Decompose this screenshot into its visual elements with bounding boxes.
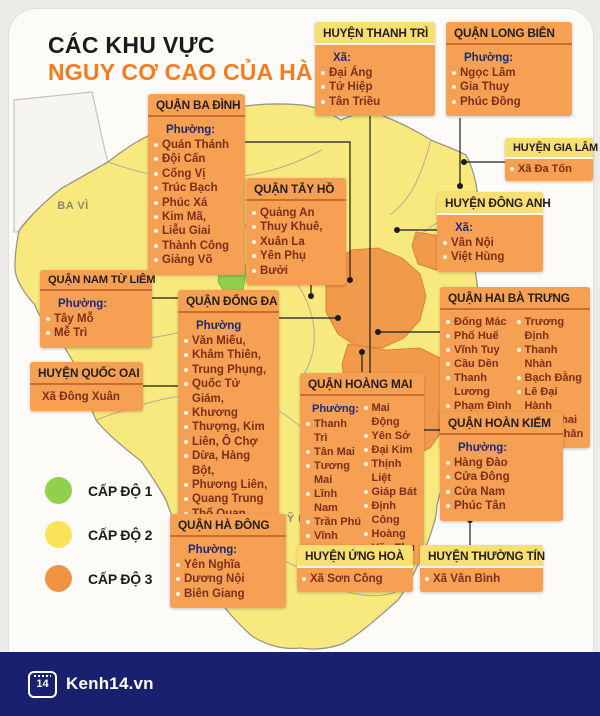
bullet-dot	[154, 172, 158, 176]
ward-name: Thịnh Liệt	[372, 457, 420, 485]
ward-list: Xã Đông Xuân	[36, 390, 138, 404]
ward-name: Trương Định	[525, 315, 586, 343]
bullet-dot	[425, 577, 429, 581]
bullet-dot	[517, 320, 521, 324]
bullet-dot	[446, 362, 450, 366]
ward-name: Cửa Nam	[454, 485, 505, 499]
ward-name: Định Công	[372, 499, 420, 527]
ward-type-label: Phường:	[154, 122, 240, 138]
ward-list: Đại ÁngTứ HiệpTân Triều	[321, 66, 430, 109]
ward-name: Dương Nội	[184, 572, 245, 586]
ward-name: Đại Áng	[329, 66, 372, 80]
ward-item: Mễ Trì	[46, 326, 147, 340]
ward-list: Văn Miếu,Khâm Thiên,Trung Phụng,Quốc Tử …	[184, 334, 274, 521]
bullet-dot	[443, 255, 447, 259]
ward-name: Thanh Lương	[454, 371, 515, 399]
ward-name: Quảng An	[260, 206, 315, 220]
level-1-dot	[45, 477, 72, 504]
ward-item: Cửa Đông	[446, 470, 558, 484]
ward-name: Phúc Xá	[162, 196, 207, 210]
bullet-dot	[321, 85, 325, 89]
ward-name: Phúc Tân	[454, 499, 506, 513]
bullet-dot	[154, 186, 158, 190]
bullet-dot	[446, 490, 450, 494]
ward-item: Thanh Trì	[306, 417, 362, 445]
district-box-title: QUẬN HÀ ĐÔNG	[170, 514, 286, 537]
ward-item: Phố Huế	[446, 329, 515, 343]
ward-name: Phố Huế	[454, 329, 499, 343]
ward-name: Giảng Võ	[162, 253, 212, 267]
ward-item: Phúc Xá	[154, 196, 240, 210]
ward-type-label: Phường:	[306, 401, 362, 417]
district-box-title: QUẬN NAM TỪ LIÊM	[40, 270, 152, 291]
district-box-quan-long-bien: QUẬN LONG BIÊN Phường: Ngọc LâmGia ThuyP…	[446, 22, 572, 116]
ward-name: Trúc Bạch	[162, 181, 218, 195]
ward-name: Khâm Thiên,	[192, 348, 261, 362]
bullet-dot	[510, 167, 514, 171]
ward-item: Dương Nội	[176, 572, 281, 586]
ward-item: Quán Thánh	[154, 138, 240, 152]
district-box-huyen-quoc-oai: HUYỆN QUỐC OAI Xã Đông Xuân	[30, 362, 143, 411]
ward-item: Thanh Lương	[446, 371, 515, 399]
ward-item: Bạch Đằng	[517, 371, 586, 385]
ward-item: Dừa, Hàng Bột,	[184, 449, 274, 478]
bullet-dot	[252, 269, 256, 273]
bullet-dot	[252, 254, 256, 258]
district-box-quan-tay-ho: QUẬN TÂY HỒ Quảng AnThuy Khuê,Xuân LaYên…	[246, 178, 346, 285]
bullet-dot	[154, 157, 158, 161]
ward-item: Thành Công	[154, 239, 240, 253]
bullet-dot	[184, 339, 188, 343]
bullet-dot	[364, 490, 368, 494]
ward-item: Cầu Dền	[446, 357, 515, 371]
ward-item: Yên Sở	[364, 429, 420, 443]
ward-name: Trần Phú	[314, 515, 361, 529]
ward-type-label: Phường	[184, 318, 274, 334]
ward-list: Tây MỗMễ Trì	[46, 312, 147, 341]
bullet-dot	[446, 376, 450, 380]
district-box-huyen-dong-anh: HUYỆN ĐÔNG ANH Xã: Vân NộiViệt Hùng	[437, 192, 543, 272]
infographic-stage: CÁC KHU VỰC NGUY CƠ CAO CỦA HÀ NỘI BA VÌ…	[0, 0, 600, 716]
bullet-dot	[452, 71, 456, 75]
district-box-title: QUẬN HAI BÀ TRƯNG	[440, 287, 590, 310]
district-box-huyen-gia-lam: HUYỆN GIA LÂM Xã Đa Tốn	[505, 138, 593, 181]
bullet-dot	[446, 320, 450, 324]
kenh14-logo-text: Kenh14.vn	[66, 674, 154, 694]
ward-item: Quang Trung	[184, 492, 274, 506]
ward-name: Yên Phụ	[260, 249, 306, 263]
ward-item: Phúc Tân	[446, 499, 558, 513]
bullet-dot	[176, 563, 180, 567]
bullet-dot	[46, 331, 50, 335]
bullet-dot	[517, 390, 521, 394]
ward-name: Đại Kim	[372, 443, 413, 457]
bullet-dot	[184, 353, 188, 357]
ward-list: Yên NghĩaDương NộiBiên Giang	[176, 558, 281, 601]
ward-item: Tân Triều	[321, 95, 430, 109]
ward-item: Trúc Bạch	[154, 181, 240, 195]
ward-item: Đống Mác	[446, 315, 515, 329]
bullet-dot	[184, 497, 188, 501]
bullet-dot	[252, 211, 256, 215]
title-line-2: NGUY CƠ CAO CỦA HÀ NỘI	[48, 59, 361, 86]
ward-item: Mai Động	[364, 401, 420, 429]
ward-item: Khâm Thiên,	[184, 348, 274, 362]
ward-name: Tây Mỗ	[54, 312, 94, 326]
ward-item: Lê Đại Hành	[517, 385, 586, 413]
ward-item: Lĩnh Nam	[306, 487, 362, 515]
ward-list: Xã Sơn Công	[302, 572, 409, 586]
district-box-quan-hoan-kiem: QUẬN HOÀN KIẾM Phường: Hàng ĐàoCửa ĐôngC…	[440, 412, 563, 521]
bullet-dot	[452, 100, 456, 104]
district-box-title: HUYỆN QUỐC OAI	[30, 362, 143, 385]
bullet-dot	[446, 504, 450, 508]
bullet-dot	[154, 215, 158, 219]
ward-item: Bưởi	[252, 264, 341, 278]
level-3-dot	[45, 565, 72, 592]
bullet-dot	[517, 348, 521, 352]
bullet-dot	[517, 376, 521, 380]
ward-name: Mai Động	[372, 401, 420, 429]
district-box-huyen-thuong-tin: HUYỆN THƯỜNG TÍN Xã Vân Bình	[420, 545, 543, 592]
district-box-huyen-thanh-tri: HUYỆN THANH TRÌ Xã: Đại ÁngTứ HiệpTân Tr…	[315, 22, 435, 116]
district-box-quan-ha-dong: QUẬN HÀ ĐÔNG Phường: Yên NghĩaDương NộiB…	[170, 514, 286, 608]
district-box-title: QUẬN TÂY HỒ	[246, 178, 346, 201]
ward-name: Ngọc Lâm	[460, 66, 516, 80]
ward-name: Cống Vị	[162, 167, 205, 181]
ward-item: Trung Phụng,	[184, 363, 274, 377]
ward-item: Khương	[184, 406, 274, 420]
ward-item: Việt Hùng	[443, 250, 538, 264]
ward-list: Vân NộiViệt Hùng	[443, 236, 538, 265]
ward-list: Ngọc LâmGia ThuyPhúc Đồng	[452, 66, 567, 109]
legend-item-level-3: CẤP ĐỘ 3	[45, 565, 152, 592]
ward-item: Định Công	[364, 499, 420, 527]
district-box-quan-ba-dinh: QUẬN BA ĐÌNH Phường: Quán ThánhĐội CấnCố…	[148, 94, 245, 275]
ward-item: Liễu Giai	[154, 224, 240, 238]
ward-name: Vân Nội	[451, 236, 494, 250]
page-title: CÁC KHU VỰC NGUY CƠ CAO CỦA HÀ NỘI	[48, 32, 361, 86]
ward-name: Thượng, Kim	[192, 420, 265, 434]
ward-item: Đại Kim	[364, 443, 420, 457]
kenh14-logo-icon: 14	[28, 671, 57, 698]
ward-name: Dừa, Hàng Bột,	[192, 449, 274, 478]
ward-name: Thanh Nhàn	[525, 343, 586, 371]
ward-name: Xã Vân Bình	[433, 572, 500, 586]
ward-type-label: Phường:	[176, 542, 281, 558]
district-box-huyen-ung-hoa: HUYỆN ỨNG HOÀ Xã Sơn Công	[297, 545, 413, 592]
ward-name: Lĩnh Nam	[314, 487, 362, 515]
bullet-dot	[306, 520, 310, 524]
bullet-dot	[306, 450, 310, 454]
ward-name: Bưởi	[260, 264, 288, 278]
ward-item: Hàng Đào	[446, 456, 558, 470]
bullet-dot	[184, 454, 188, 458]
map-label-ba-vi: BA VÌ	[56, 198, 90, 215]
title-line-1: CÁC KHU VỰC	[48, 32, 361, 59]
district-box-title: HUYỆN GIA LÂM	[505, 138, 593, 159]
district-box-title: QUẬN BA ĐÌNH	[148, 94, 245, 117]
ward-list: Quảng AnThuy Khuê,Xuân LaYên PhụBưởi	[252, 206, 341, 278]
bullet-dot	[184, 411, 188, 415]
ward-name: Quán Thánh	[162, 138, 229, 152]
ward-item: Vĩnh Tuy	[446, 343, 515, 357]
ward-name: Khương	[192, 406, 238, 420]
ward-item: Đại Áng	[321, 66, 430, 80]
ward-name: Phúc Đồng	[460, 95, 521, 109]
bullet-dot	[452, 85, 456, 89]
ward-name: Liễu Giai	[162, 224, 211, 238]
bullet-dot	[446, 348, 450, 352]
bullet-dot	[184, 483, 188, 487]
bullet-dot	[176, 592, 180, 596]
ward-item: Phương Liên,	[184, 478, 274, 492]
ward-list: Xã Vân Bình	[425, 572, 539, 586]
ward-name: Xuân La	[260, 235, 305, 249]
ward-name: Xã Sơn Công	[310, 572, 383, 586]
level-2-dot	[45, 521, 72, 548]
bullet-dot	[252, 225, 256, 229]
ward-name: Cầu Dền	[454, 357, 499, 371]
district-box-quan-nam-tu-liem: QUẬN NAM TỪ LIÊM Phường: Tây MỗMễ Trì	[40, 270, 152, 348]
bullet-dot	[306, 422, 310, 426]
district-box-quan-dong-da: QUẬN ĐỐNG ĐA Phường Văn Miếu,Khâm Thiên,…	[178, 290, 279, 528]
district-box-title: HUYỆN ĐÔNG ANH	[437, 192, 543, 215]
ward-name: Bạch Đằng	[525, 371, 582, 385]
district-box-title: HUYỆN THƯỜNG TÍN	[420, 545, 543, 568]
ward-name: Lê Đại Hành	[525, 385, 586, 413]
ward-item: Tân Mai	[306, 445, 362, 459]
ward-item: Thịnh Liệt	[364, 457, 420, 485]
bullet-dot	[446, 461, 450, 465]
bullet-dot	[154, 244, 158, 248]
ward-name: Gia Thuy	[460, 80, 509, 94]
legend-item-level-2: CẤP ĐỘ 2	[45, 521, 152, 548]
ward-name: Trung Phụng,	[192, 363, 266, 377]
bullet-dot	[154, 229, 158, 233]
risk-level-legend: CẤP ĐỘ 1 CẤP ĐỘ 2 CẤP ĐỘ 3	[45, 477, 152, 592]
ward-item: Xuân La	[252, 235, 341, 249]
ward-name: Thuy Khuê,	[260, 220, 323, 234]
bullet-dot	[184, 382, 188, 386]
ward-name: Biên Giang	[184, 587, 245, 601]
bullet-dot	[154, 201, 158, 205]
ward-item: Gia Thuy	[452, 80, 567, 94]
bullet-dot	[184, 368, 188, 372]
ward-item: Quốc Tử Giám,	[184, 377, 274, 406]
ward-item: Trần Phú	[306, 515, 362, 529]
bullet-dot	[364, 406, 368, 410]
ward-name: Xã Đông Xuân	[42, 390, 120, 404]
ward-item: Tương Mai	[306, 459, 362, 487]
ward-name: Xã Đa Tốn	[518, 162, 572, 176]
ward-item: Biên Giang	[176, 587, 281, 601]
legend-label: CẤP ĐỘ 2	[88, 527, 152, 543]
bullet-dot	[46, 317, 50, 321]
ward-type-label: Xã:	[321, 50, 430, 66]
bullet-dot	[364, 504, 368, 508]
ward-name: Vĩnh Tuy	[454, 343, 500, 357]
ward-type-label: Phường:	[452, 50, 567, 66]
ward-item: Cống Vị	[154, 167, 240, 181]
ward-item: Tây Mỗ	[46, 312, 147, 326]
ward-name: Yên Nghĩa	[184, 558, 240, 572]
district-box-quan-hoang-mai: QUẬN HOÀNG MAI Phường: Thanh TrìTân MaiT…	[300, 373, 424, 564]
ward-item: Xã Đông Xuân	[36, 390, 138, 404]
ward-item: Xã Sơn Công	[302, 572, 409, 586]
ward-name: Văn Miếu,	[192, 334, 246, 348]
ward-item: Quảng An	[252, 206, 341, 220]
ward-item: Vân Nội	[443, 236, 538, 250]
ward-item: Kim Mã,	[154, 210, 240, 224]
bullet-dot	[176, 577, 180, 581]
ward-name: Kim Mã,	[162, 210, 206, 224]
ward-list: Xã Đa Tốn	[510, 162, 589, 176]
ward-item: Yên Nghĩa	[176, 558, 281, 572]
ward-item: Đội Cấn	[154, 152, 240, 166]
ward-item: Phúc Đồng	[452, 95, 567, 109]
bullet-dot	[252, 240, 256, 244]
ward-list: Hàng ĐàoCửa ĐôngCửa NamPhúc Tân	[446, 456, 558, 514]
ward-type-label: Phường:	[46, 296, 147, 312]
district-box-title: QUẬN LONG BIÊN	[446, 22, 572, 45]
ward-name: Quang Trung	[192, 492, 264, 506]
ward-name: Tứ Hiệp	[329, 80, 372, 94]
ward-item: Văn Miếu,	[184, 334, 274, 348]
ward-name: Liên, Ô Chợ	[192, 435, 258, 449]
ward-item: Xã Đa Tốn	[510, 162, 589, 176]
ward-name: Hàng Đào	[454, 456, 508, 470]
bullet-dot	[321, 100, 325, 104]
ward-name: Thành Công	[162, 239, 229, 253]
ward-item: Giáp Bát	[364, 485, 420, 499]
ward-type-label: Xã:	[443, 220, 538, 236]
ward-item: Giảng Võ	[154, 253, 240, 267]
ward-list-left: Thanh TrìTân MaiTương MaiLĩnh NamTrần Ph…	[306, 417, 362, 557]
ward-name: Quốc Tử Giám,	[192, 377, 274, 406]
bullet-dot	[302, 577, 306, 581]
ward-name: Tân Mai	[314, 445, 355, 459]
bullet-dot	[364, 448, 368, 452]
bullet-dot	[364, 532, 368, 536]
ward-item: Thuy Khuê,	[252, 220, 341, 234]
ward-list-right: Mai ĐộngYên SởĐại KimThịnh LiệtGiáp BátĐ…	[364, 401, 420, 557]
bullet-dot	[154, 258, 158, 262]
bullet-dot	[443, 241, 447, 245]
ward-name: Yên Sở	[372, 429, 410, 443]
bullet-dot	[306, 464, 310, 468]
bullet-dot	[446, 404, 450, 408]
ward-name: Giáp Bát	[372, 485, 417, 499]
ward-item: Ngọc Lâm	[452, 66, 567, 80]
ward-list: Quán ThánhĐội CấnCống VịTrúc BạchPhúc Xá…	[154, 138, 240, 268]
ward-item: Liên, Ô Chợ	[184, 435, 274, 449]
district-box-title: HUYỆN THANH TRÌ	[315, 22, 435, 45]
ward-name: Mễ Trì	[54, 326, 87, 340]
legend-item-level-1: CẤP ĐỘ 1	[45, 477, 152, 504]
bullet-dot	[154, 143, 158, 147]
bullet-dot	[184, 440, 188, 444]
ward-name: Tương Mai	[314, 459, 362, 487]
legend-label: CẤP ĐỘ 1	[88, 483, 152, 499]
bullet-dot	[364, 462, 368, 466]
bullet-dot	[306, 492, 310, 496]
district-box-title: QUẬN ĐỐNG ĐA	[178, 290, 279, 313]
ward-name: Việt Hùng	[451, 250, 504, 264]
ward-item: Cửa Nam	[446, 485, 558, 499]
bullet-dot	[321, 71, 325, 75]
ward-name: Phương Liên,	[192, 478, 267, 492]
ward-item: Thượng, Kim	[184, 420, 274, 434]
district-box-title: QUẬN HOÀN KIẾM	[440, 412, 563, 435]
ward-name: Cửa Đông	[454, 470, 510, 484]
ward-name: Đống Mác	[454, 315, 507, 329]
ward-item: Xã Vân Bình	[425, 572, 539, 586]
ward-item: Yên Phụ	[252, 249, 341, 263]
brand-bar: 14 Kenh14.vn	[0, 652, 600, 716]
district-box-title: HUYỆN ỨNG HOÀ	[297, 545, 413, 568]
bullet-dot	[364, 434, 368, 438]
ward-type-label: Phường:	[446, 440, 558, 456]
ward-item: Thanh Nhàn	[517, 343, 586, 371]
bullet-dot	[446, 475, 450, 479]
ward-name: Đội Cấn	[162, 152, 205, 166]
ward-item: Tứ Hiệp	[321, 80, 430, 94]
bullet-dot	[446, 334, 450, 338]
ward-item: Trương Định	[517, 315, 586, 343]
bullet-dot	[184, 425, 188, 429]
legend-label: CẤP ĐỘ 3	[88, 571, 152, 587]
bullet-dot	[306, 534, 310, 538]
district-box-title: QUẬN HOÀNG MAI	[300, 373, 424, 396]
ward-name: Thanh Trì	[314, 417, 362, 445]
ward-name: Tân Triều	[329, 95, 380, 109]
